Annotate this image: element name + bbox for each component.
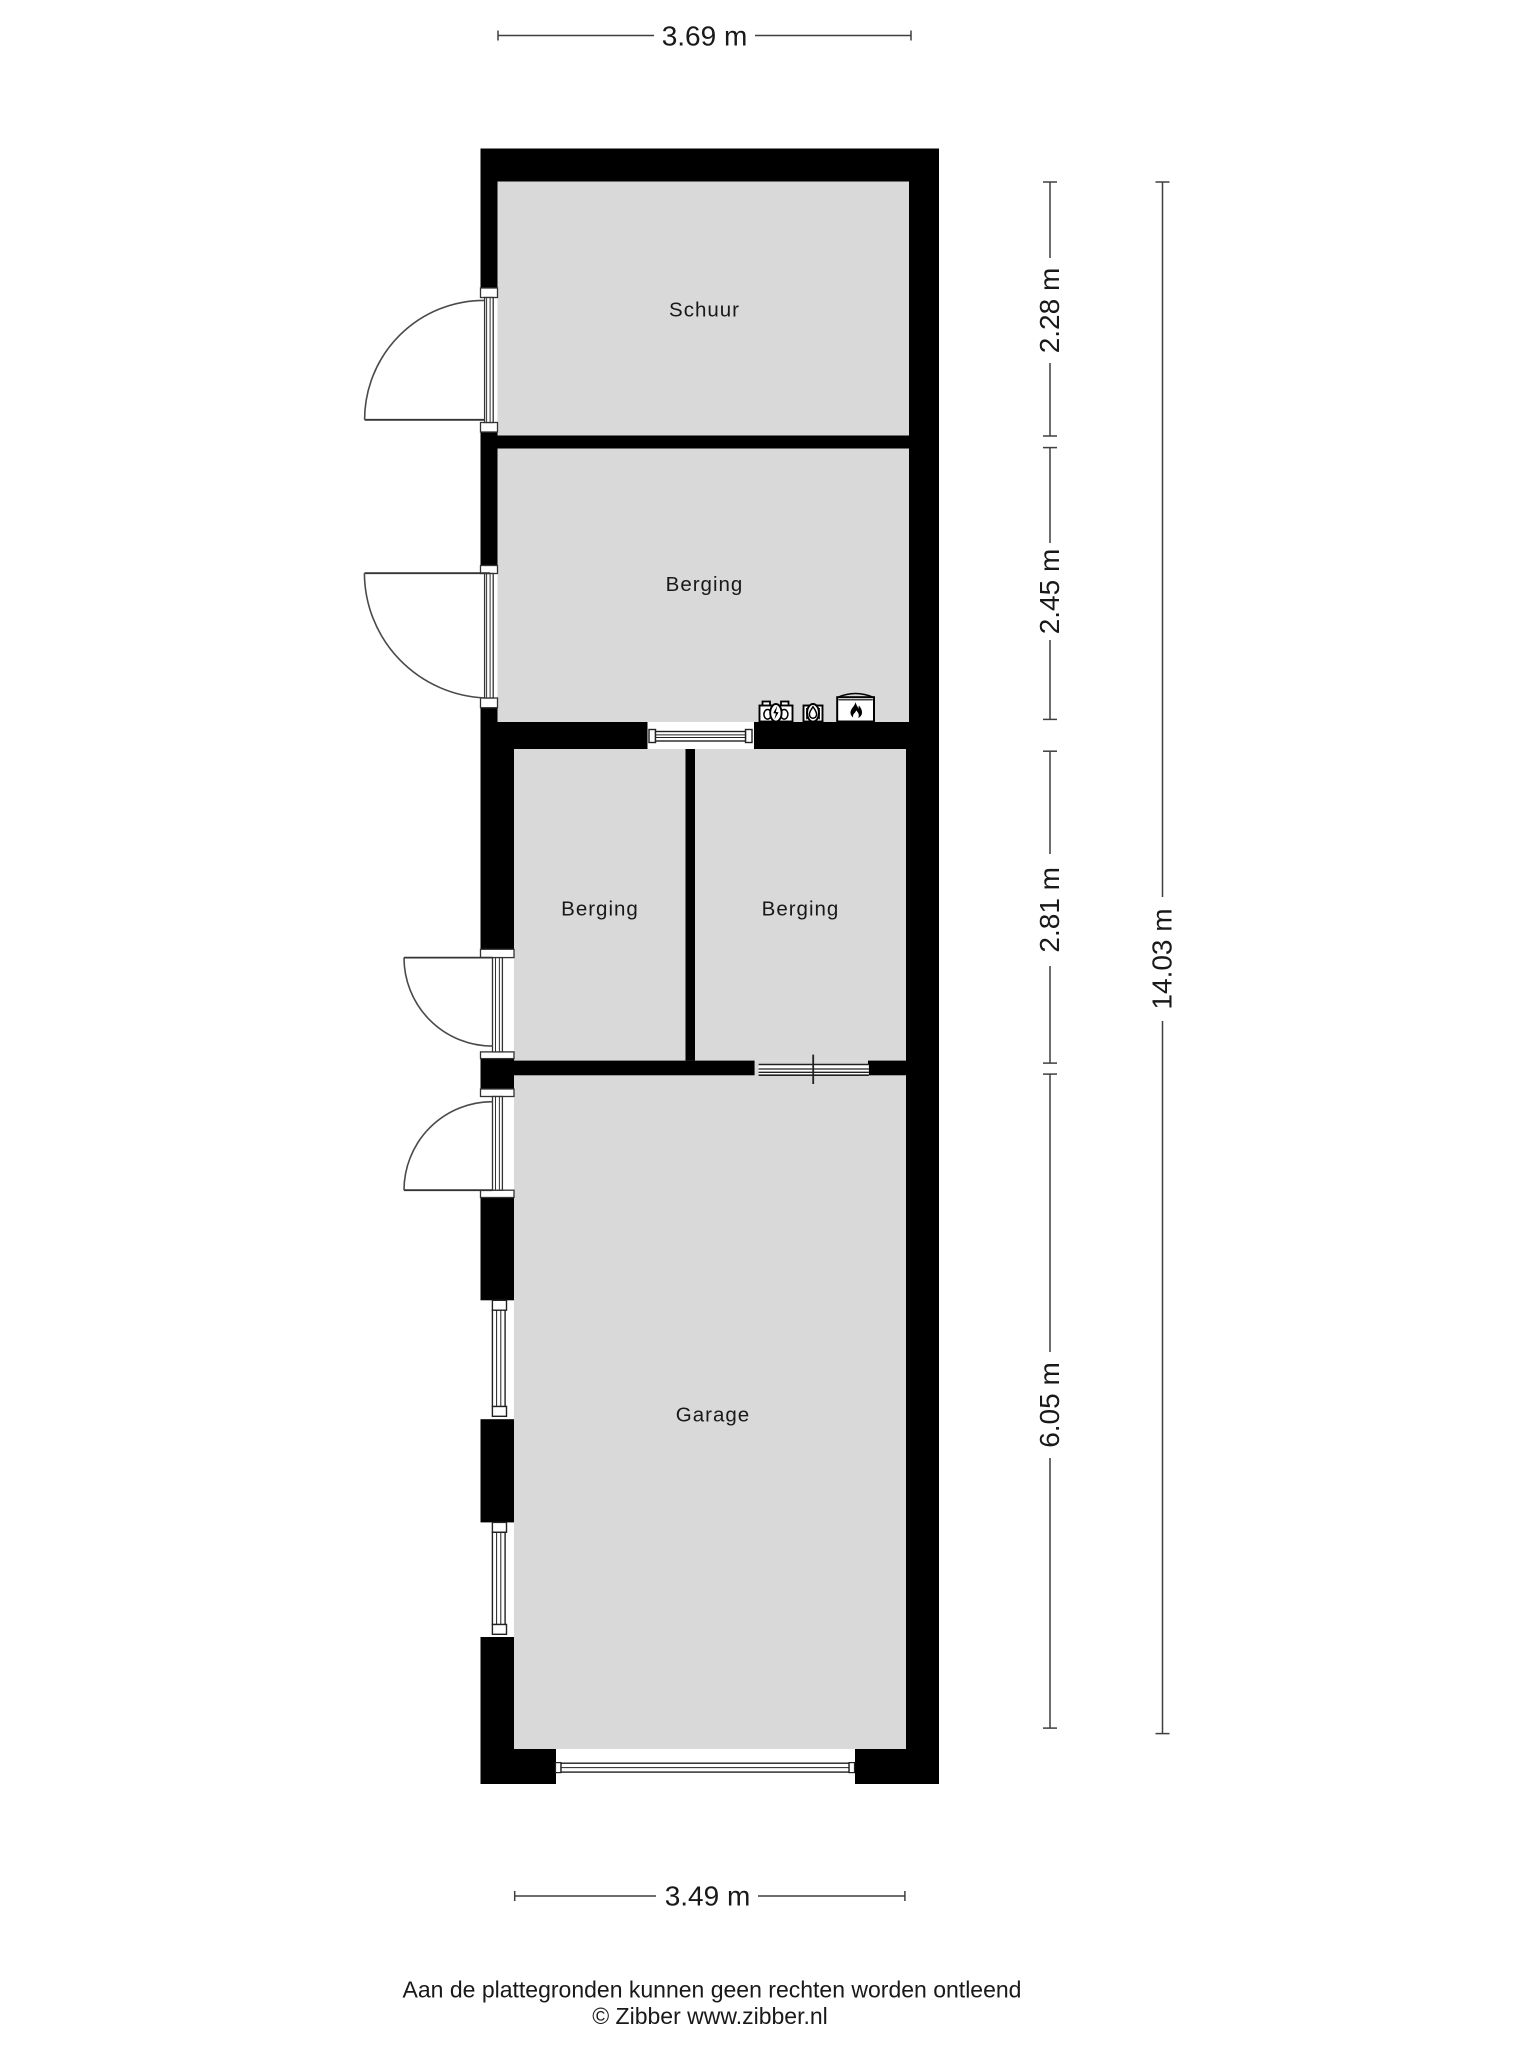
- svg-text:Aan de plattegronden kunnen ge: Aan de plattegronden kunnen geen rechten…: [403, 1977, 1022, 2003]
- svg-text:Schuur: Schuur: [669, 299, 740, 322]
- svg-text:2.28 m: 2.28 m: [1034, 268, 1065, 354]
- svg-text:14.03 m: 14.03 m: [1147, 908, 1178, 1009]
- svg-text:2.45 m: 2.45 m: [1034, 549, 1065, 635]
- svg-text:Garage: Garage: [676, 1404, 750, 1427]
- svg-text:6.05 m: 6.05 m: [1034, 1362, 1065, 1448]
- svg-text:3.49 m: 3.49 m: [665, 1881, 751, 1912]
- svg-text:Berging: Berging: [762, 898, 840, 921]
- svg-text:3.69 m: 3.69 m: [662, 21, 748, 52]
- svg-text:2.81 m: 2.81 m: [1034, 867, 1065, 953]
- svg-text:Berging: Berging: [666, 573, 744, 596]
- svg-text:Berging: Berging: [561, 898, 639, 921]
- svg-text:© Zibber www.zibber.nl: © Zibber www.zibber.nl: [592, 2003, 828, 2029]
